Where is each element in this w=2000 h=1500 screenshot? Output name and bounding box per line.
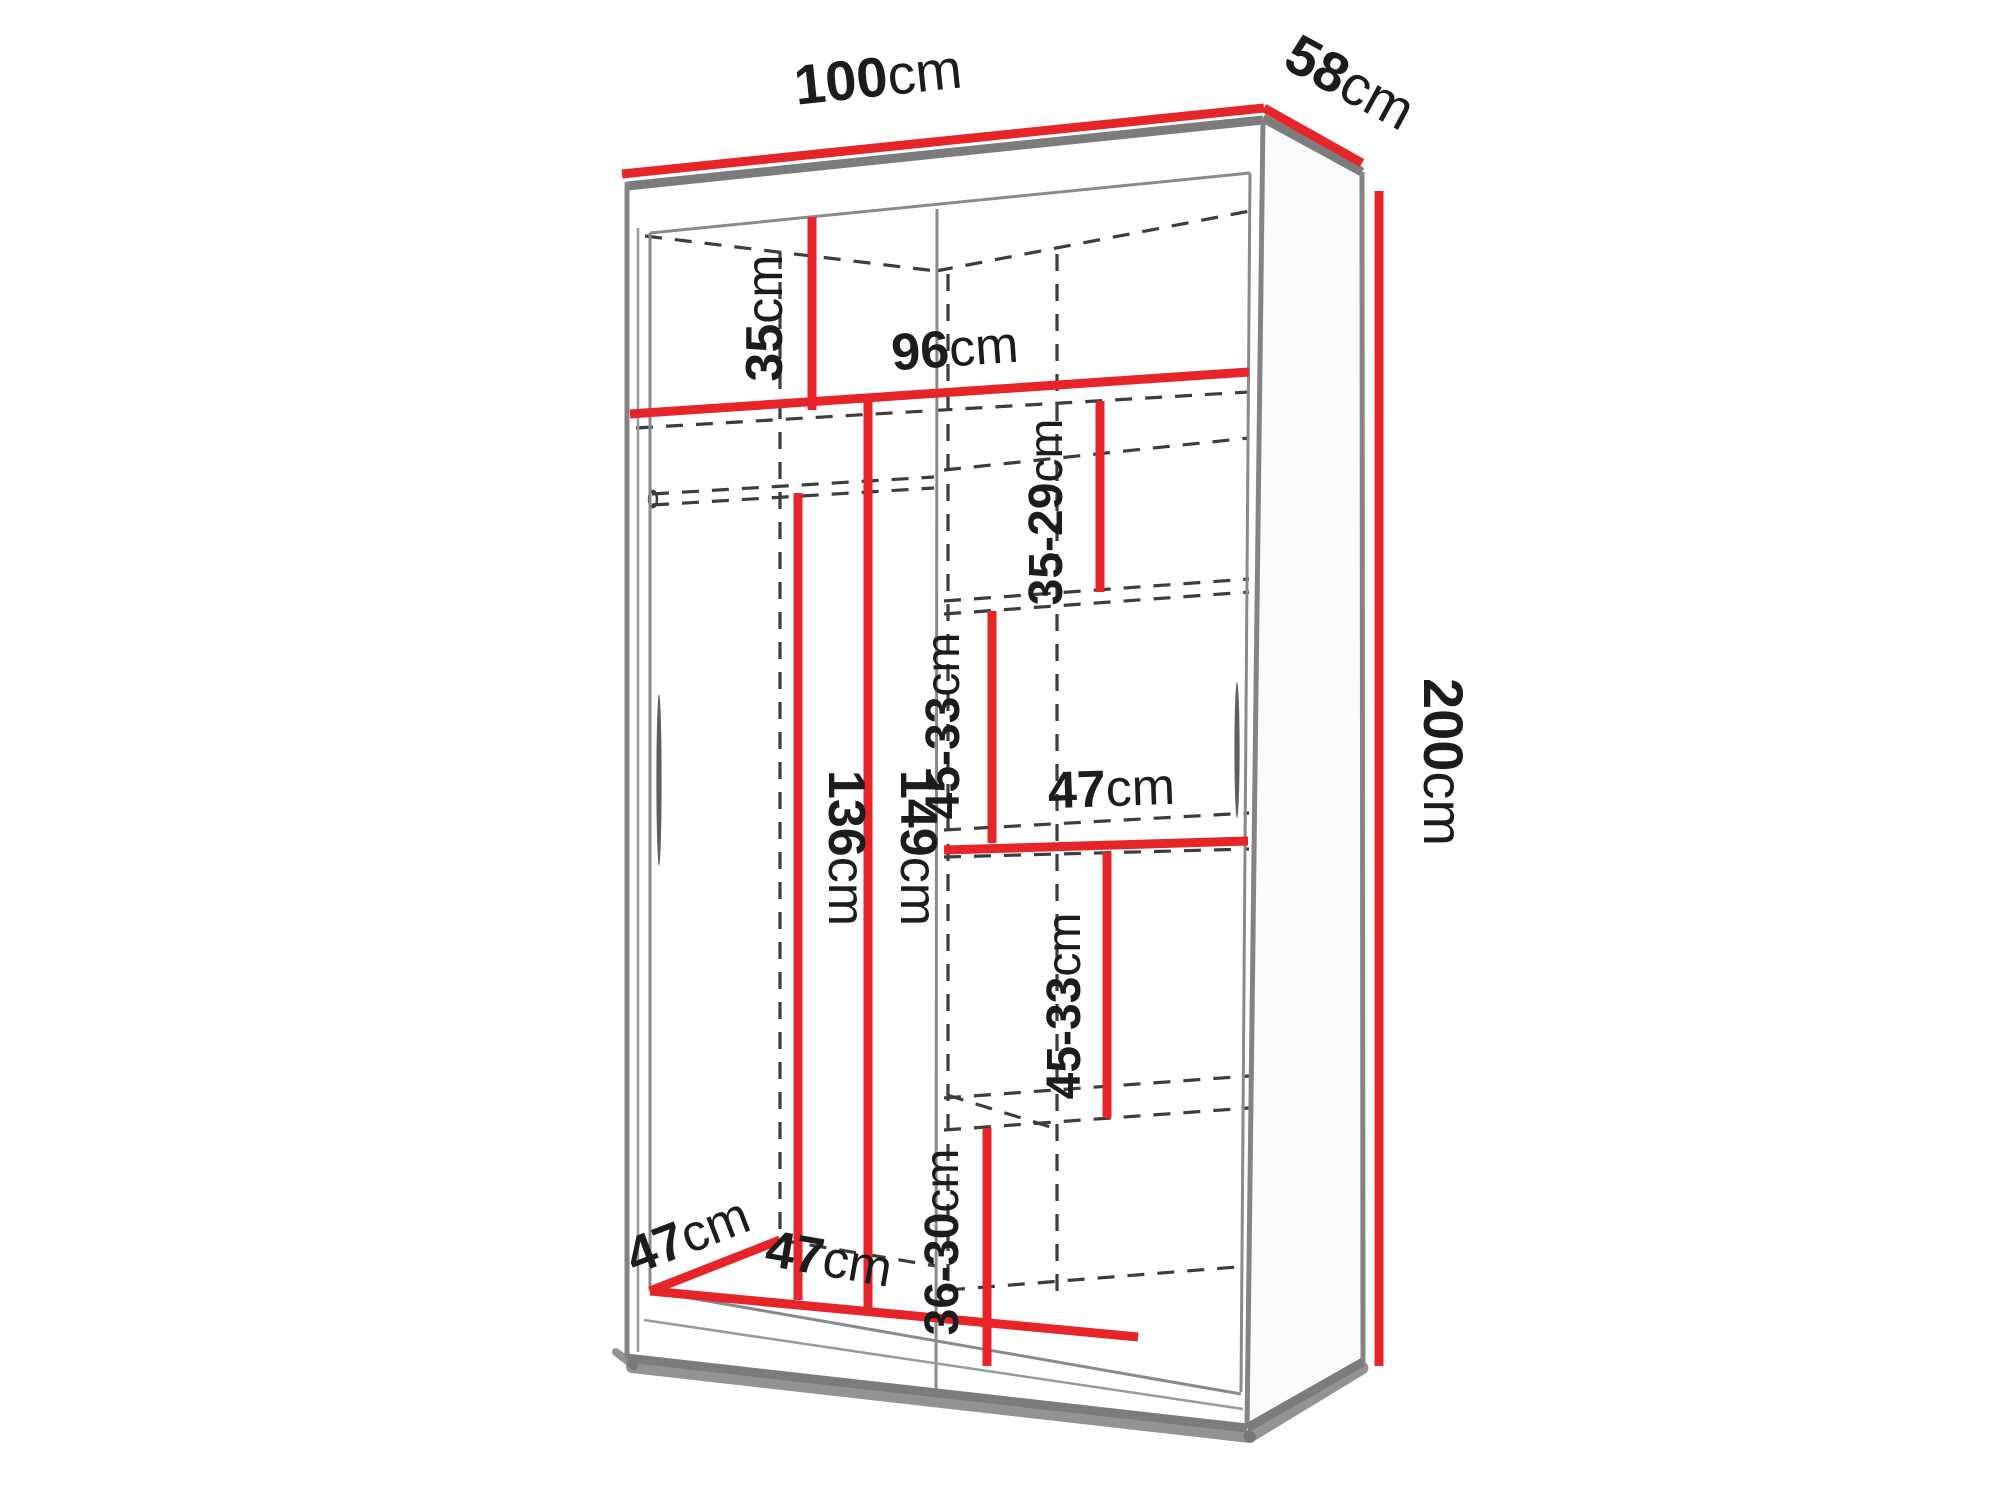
label-top-compartment: 35cm (736, 254, 794, 381)
side-face (1247, 118, 1363, 1428)
label-left-compartment-height: 149cm (889, 770, 947, 926)
label-height: 200cm (1412, 678, 1475, 846)
label-right-gap-bottom: 36-30cm (916, 1149, 969, 1336)
wardrobe-dimension-diagram: 100cm 58cm 200cm 96cm 35cm 35-29cm 45-33… (0, 0, 2000, 1500)
left-door-handle-groove (656, 694, 661, 866)
label-width: 100cm (791, 36, 965, 116)
label-right-gap-lower: 45-33cm (1038, 913, 1091, 1100)
label-right-gap-top: 35-29cm (1020, 419, 1073, 606)
label-right-shelf-width: 47cm (1047, 758, 1176, 820)
right-door-handle-groove (1234, 682, 1239, 818)
side-back-edge (1362, 172, 1363, 1362)
label-hanging-height: 136cm (817, 770, 875, 926)
label-interior-width: 96cm (889, 316, 1020, 383)
